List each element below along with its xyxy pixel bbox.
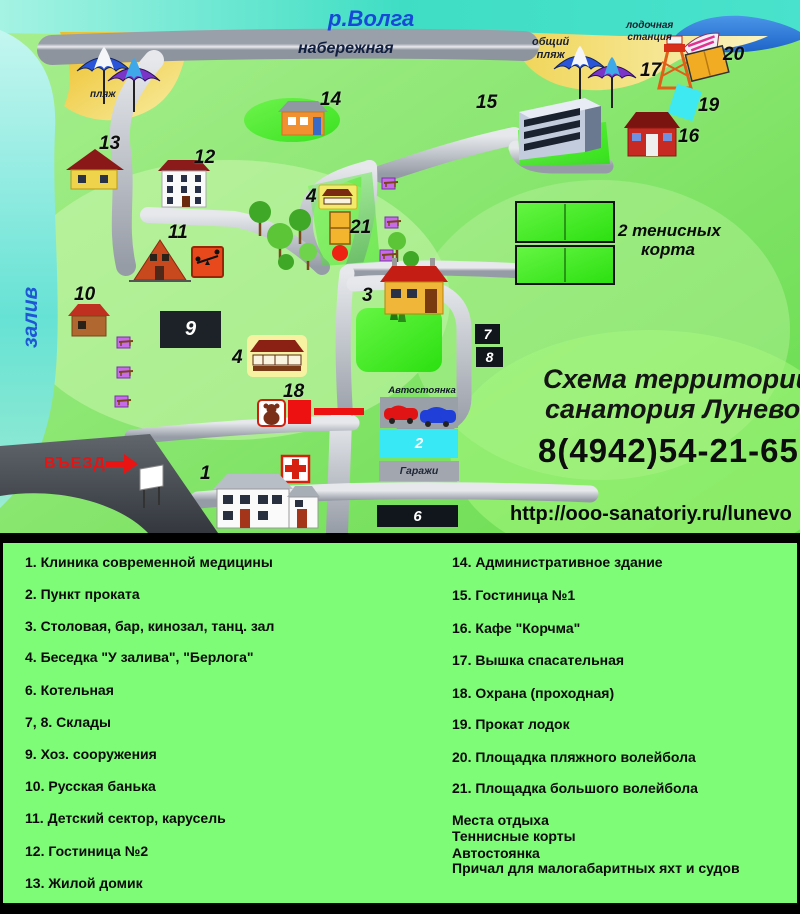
marker-19: 19 bbox=[698, 95, 719, 117]
marker-3: 3 bbox=[362, 285, 373, 307]
legend-item-21: 21. Площадка большого волейбола bbox=[452, 780, 698, 796]
tennis-courts bbox=[516, 202, 614, 284]
marker-8: 8 bbox=[486, 349, 494, 365]
legend-item-16: 16. Кафе "Корчма" bbox=[452, 620, 580, 636]
road-down bbox=[343, 273, 347, 424]
utility-9-box: 9 bbox=[160, 311, 221, 348]
carousel-icon bbox=[192, 247, 223, 277]
rental-2-box: 2 bbox=[380, 429, 458, 458]
bottom-border bbox=[0, 903, 800, 914]
map-title-line2: санатория Лунево bbox=[545, 394, 800, 425]
parking-cars-icon bbox=[380, 397, 458, 428]
boat-station-line2: станция bbox=[626, 32, 673, 44]
legend-item-11: 11. Детский сектор, карусель bbox=[25, 810, 226, 826]
marker-14: 14 bbox=[320, 89, 341, 111]
entrance-label: ВЪЕЗД bbox=[44, 455, 106, 473]
pavilion-icon-top bbox=[319, 185, 357, 209]
security-bear-icon bbox=[258, 400, 285, 426]
warehouse-8-box: 8 bbox=[476, 347, 503, 367]
marker-4b: 4 bbox=[232, 347, 243, 369]
security-post-marker bbox=[288, 400, 311, 424]
public-beach-line2: пляж bbox=[532, 49, 569, 62]
legend-item-13: 13. Жилой домик bbox=[25, 875, 143, 891]
tennis-courts-label: 2 тенисных корта bbox=[618, 222, 718, 259]
garages-label: Гаражи bbox=[400, 465, 439, 477]
boiler-6-box: 6 bbox=[377, 505, 458, 527]
tennis-label-line1: 2 тенисных bbox=[618, 222, 718, 241]
marker-6: 6 bbox=[413, 508, 421, 525]
marker-12: 12 bbox=[194, 147, 215, 169]
marker-16: 16 bbox=[678, 126, 699, 148]
legend-extra-rest: Места отдыха bbox=[452, 812, 549, 828]
legend-item-14: 14. Административное здание bbox=[452, 554, 663, 570]
embankment-road bbox=[52, 44, 524, 50]
building-16-cafe bbox=[624, 112, 680, 156]
boat-station-line1: лодочная bbox=[626, 20, 673, 32]
legend-item-10: 10. Русская банька bbox=[25, 778, 156, 794]
marker-10: 10 bbox=[74, 284, 95, 306]
public-beach-line1: общий bbox=[532, 36, 569, 49]
legend-item-18: 18. Охрана (проходная) bbox=[452, 685, 614, 701]
barrier-line bbox=[314, 408, 364, 415]
marker-1: 1 bbox=[200, 463, 211, 485]
legend-item-20: 20. Площадка пляжного волейбола bbox=[452, 749, 696, 765]
legend-item-19: 19. Прокат лодок bbox=[452, 716, 570, 732]
marker-7: 7 bbox=[484, 326, 492, 342]
tennis-label-line2: корта bbox=[618, 241, 718, 260]
legend-extra-parking: Автостоянка bbox=[452, 845, 540, 861]
map-legend-divider bbox=[0, 533, 800, 543]
map-title-line1: Схема территории bbox=[543, 364, 800, 395]
river-volga-label: р.Волга bbox=[328, 6, 414, 32]
marker-17: 17 bbox=[640, 60, 661, 82]
legend-item-12: 12. Гостиница №2 bbox=[25, 843, 148, 859]
marker-18: 18 bbox=[283, 381, 304, 403]
beach-label: пляж bbox=[90, 89, 116, 100]
marker-2: 2 bbox=[415, 435, 423, 452]
legend-item-2: 2. Пункт проката bbox=[25, 586, 140, 602]
embankment-label: набережная bbox=[298, 40, 394, 58]
legend-extra-pier: Причал для малогабаритных яхт и судов bbox=[452, 860, 740, 876]
legend-item-15: 15. Гостиница №1 bbox=[452, 587, 575, 603]
pavilion-icon-berloga bbox=[247, 335, 307, 377]
marker-20: 20 bbox=[723, 44, 744, 66]
legend-panel: 1. Клиника современной медицины 2. Пункт… bbox=[0, 543, 800, 903]
marker-11: 11 bbox=[168, 222, 188, 244]
volleyball-court-21 bbox=[330, 212, 350, 261]
medical-cross-icon bbox=[282, 456, 309, 482]
marker-9: 9 bbox=[185, 318, 196, 341]
marker-4a: 4 bbox=[306, 186, 317, 208]
marker-13: 13 bbox=[99, 133, 120, 155]
building-10-banya bbox=[68, 304, 110, 336]
legend-extra-tennis: Теннисные корты bbox=[452, 828, 576, 844]
marker-15: 15 bbox=[476, 92, 497, 114]
bay-label: залив bbox=[19, 286, 43, 348]
sanatorium-map-page: р.Волга набережная пляж общий пляж лодоч… bbox=[0, 0, 800, 914]
warehouse-7-box: 7 bbox=[475, 324, 500, 344]
public-beach-label: общий пляж bbox=[532, 36, 569, 61]
legend-item-3: 3. Столовая, бар, кинозал, танц. зал bbox=[25, 618, 274, 634]
garages-box: Гаражи bbox=[379, 461, 459, 481]
legend-item-6: 6. Котельная bbox=[25, 682, 114, 698]
parking-label: Автостоянка bbox=[386, 385, 458, 396]
legend-item-4: 4. Беседка "У залива", "Берлога" bbox=[25, 649, 254, 665]
website-url: http://ooo-sanatoriy.ru/lunevo bbox=[510, 503, 792, 526]
phone-number: 8(4942)54-21-65 bbox=[538, 432, 799, 470]
legend-item-9: 9. Хоз. сооружения bbox=[25, 746, 157, 762]
south-road bbox=[337, 420, 341, 533]
boat-station-label: лодочная станция bbox=[626, 20, 673, 43]
legend-item-7-8: 7, 8. Склады bbox=[25, 714, 111, 730]
legend-item-17: 17. Вышка спасательная bbox=[452, 652, 624, 668]
legend-item-1: 1. Клиника современной медицины bbox=[25, 554, 273, 570]
marker-21: 21 bbox=[350, 217, 371, 239]
